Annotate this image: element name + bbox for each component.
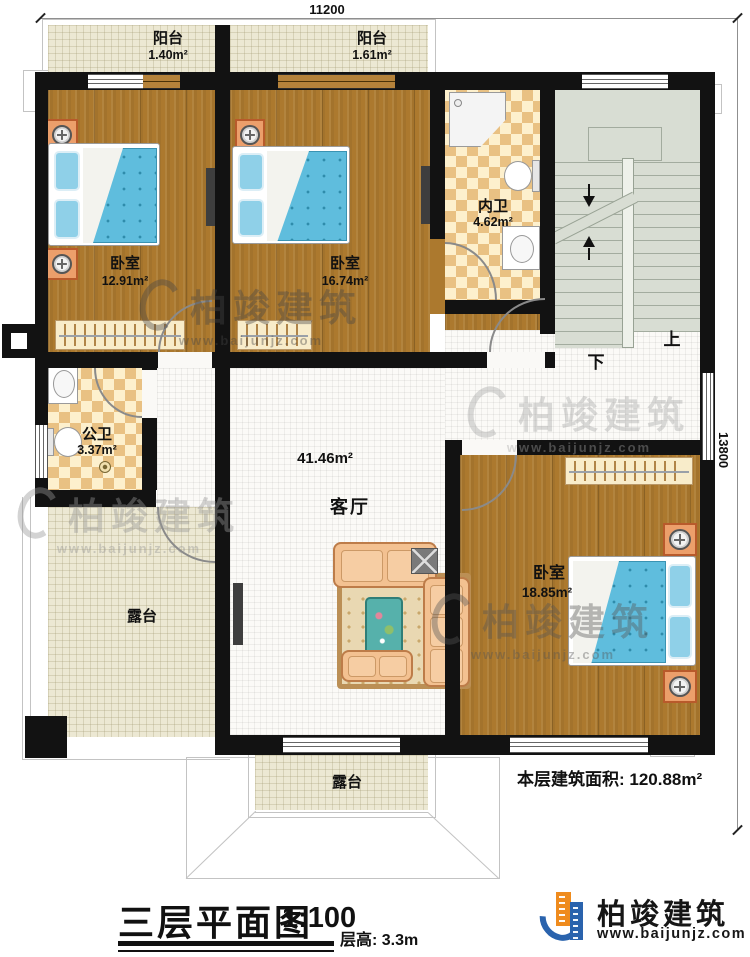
sofa-bottom [341,650,413,682]
sink-basin [510,235,534,263]
sink-public [48,362,78,404]
floor-plan-canvas: 阳台 1.40m² 阳台 1.61m² 卧室 12.91m² 卧室 16.74m… [0,0,750,957]
nightstand [663,670,697,703]
hall-floor [157,368,215,507]
stairs-arrow-up-icon [583,236,595,247]
toilet-tank [532,160,540,192]
living-room-label: 客厅 [330,497,370,518]
brand-website: www.baijunjz.com [597,926,746,942]
terrace-slider-living [283,737,400,753]
living-room-area: 41.46m² [297,450,353,467]
nightstand [663,523,697,556]
dimension-height: 13800 [716,432,731,468]
sink-basin [53,370,75,398]
balcony2-label: 阳台 [357,30,387,47]
door-opening-bedroom3 [462,440,517,455]
door-opening-public-bath [142,370,157,418]
stairs-stringer [622,158,634,348]
dimension-line-right [737,18,738,830]
bedroom2-label: 卧室 [330,255,360,272]
wall [215,25,230,368]
terrace-parapet-left-inner [30,497,31,752]
balcony1-floor [48,25,215,72]
title-underline-thick [118,941,334,946]
window-bedroom3-bottom [510,737,648,753]
wall [445,440,460,755]
wardrobe-bedroom3 [565,457,693,485]
toilet-ensuite [504,158,540,194]
door-opening-bedroom2 [487,352,545,368]
window-stairs-top [582,74,668,89]
stairs-arrow-shaft-up [588,184,590,196]
bedroom1-area: 12.91m² [102,274,149,288]
title-underline-thin [118,950,334,952]
roof-ridge-line [255,812,428,813]
balcony-door-bedroom1 [143,74,180,89]
sofa-cushion [341,550,383,582]
dimension-width: 11200 [309,2,344,17]
brand-logo-icon [541,890,593,950]
sofa-cushion [379,656,407,677]
bedroom1-label: 卧室 [110,255,140,272]
ensuite-bath-label: 内卫 [478,198,508,215]
bedroom2-area: 16.74m² [322,274,369,288]
public-bath-area: 3.37m² [77,443,117,457]
floor-area-note: 本层建筑面积: 120.88m² [517,765,702,790]
sink-ensuite [502,226,540,270]
tv-bedroom1 [206,168,215,226]
stairs-arrow-shaft-down [588,248,590,260]
public-bath-label: 公卫 [82,426,112,443]
pillow [54,151,80,191]
balcony1-label: 阳台 [153,30,183,47]
dimension-line-top [40,18,737,19]
bedroom3-label: 卧室 [533,565,565,583]
pillow [238,153,264,191]
balcony2-area: 1.61m² [352,48,392,62]
shower-head-icon [454,99,462,107]
stairs-landing-outline [588,127,662,161]
brand-logo-building-blue [570,902,583,940]
pillow [668,564,692,608]
balcony2-floor [230,25,428,72]
stairs-up-label: 上 [664,330,681,350]
floor-drain-icon [99,461,111,473]
coffee-table [365,597,403,657]
corner-side-table [411,548,438,574]
column-solid [25,716,67,758]
ensuite-bath-area: 4.62m² [473,215,513,229]
balcony1-area: 1.40m² [148,48,188,62]
bed-bedroom2 [232,146,350,244]
pillow [54,199,80,239]
bedroom3-area: 18.85m² [522,585,572,601]
sofa-cushion [348,656,376,677]
door-opening-ensuite [430,239,445,314]
terrace-left-label: 露台 [127,608,157,625]
nightstand [46,248,78,280]
wall [35,352,555,368]
door-opening-bedroom1 [158,352,212,368]
bed-bedroom3 [568,556,696,666]
terrace-bottom-label: 露台 [332,774,362,791]
stairs-arrow-down-icon [583,196,595,207]
pillow [238,199,264,237]
stairs-down-label: 下 [588,353,605,373]
tv-bedroom2 [421,166,430,224]
bed-bedroom1 [48,143,160,246]
terrace-parapet-left [22,497,23,760]
window-public-bath [35,425,48,478]
balcony-door-bedroom2 [278,74,395,89]
column-hollow [2,324,36,358]
wall [540,72,555,334]
wall [35,490,156,507]
wall [215,368,230,755]
floor-height-note: 层高: 3.3m [340,926,418,950]
window-corridor-right [702,373,714,460]
toilet-bowl [504,161,532,191]
brand-logo-building-orange [556,892,571,926]
tv-living-room [233,583,243,645]
wardrobe-bedroom2 [237,320,312,350]
pillow [668,615,692,659]
